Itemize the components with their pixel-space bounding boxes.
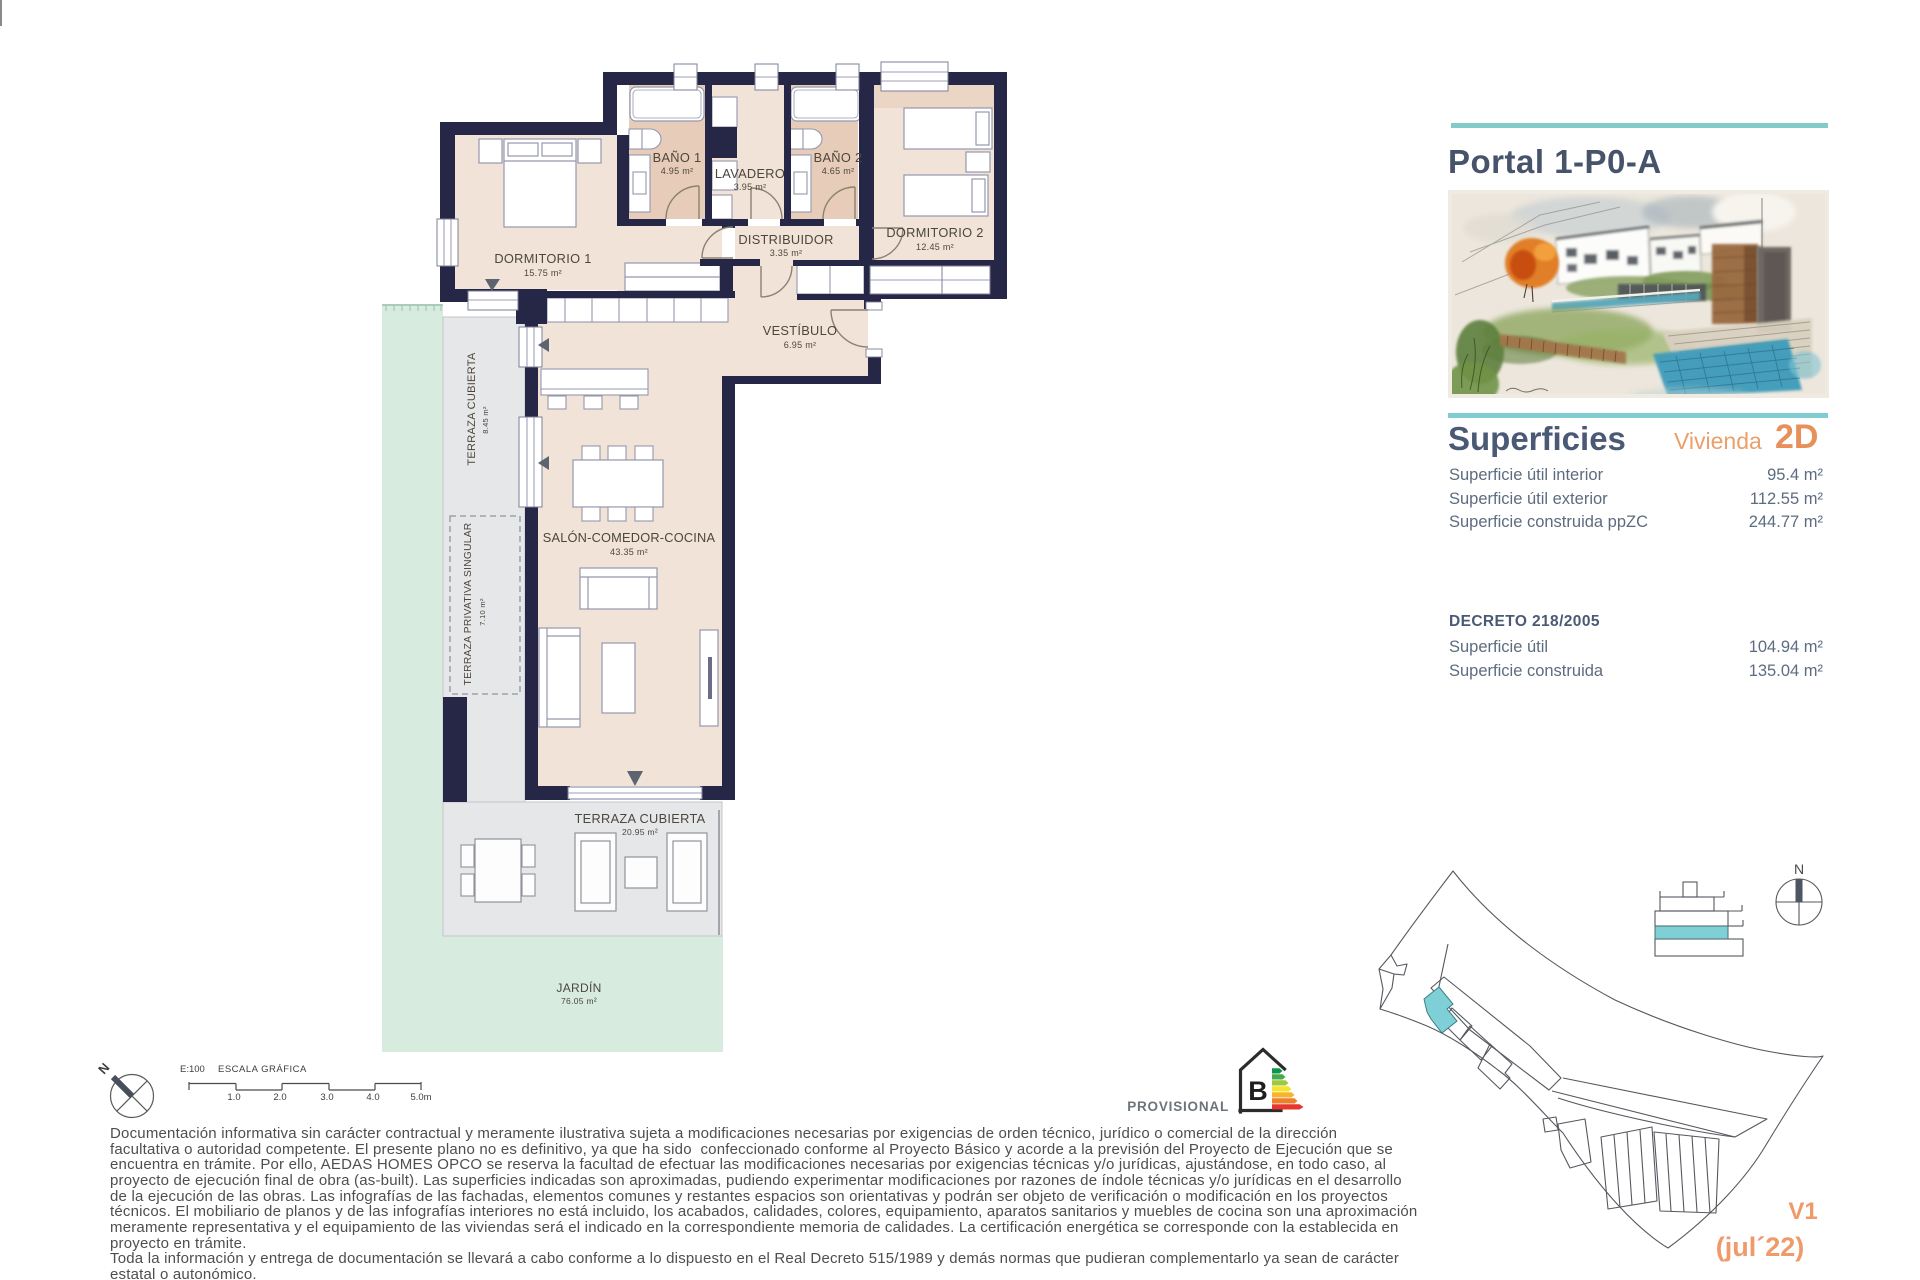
svg-text:SALÓN-COMEDOR-COCINA: SALÓN-COMEDOR-COCINA [543, 530, 716, 545]
svg-text:BAÑO 1: BAÑO 1 [653, 150, 702, 165]
svg-text:6.95 m²: 6.95 m² [784, 340, 817, 350]
svg-text:TERRAZA PRIVATIVA SINGULAR: TERRAZA PRIVATIVA SINGULAR [463, 523, 474, 686]
svg-text:1.0: 1.0 [227, 1092, 240, 1103]
svg-text:BAÑO 2: BAÑO 2 [814, 150, 863, 165]
svg-text:B: B [1248, 1076, 1268, 1106]
svg-text:76.05 m²: 76.05 m² [561, 996, 597, 1006]
svg-text:LAVADERO: LAVADERO [715, 166, 785, 181]
svg-text:3.35 m²: 3.35 m² [770, 248, 803, 258]
svg-text:43.35 m²: 43.35 m² [610, 547, 648, 557]
svg-text:3.0: 3.0 [320, 1092, 333, 1103]
svg-text:ESCALA GRÁFICA: ESCALA GRÁFICA [218, 1064, 307, 1075]
svg-text:DORMITORIO 1: DORMITORIO 1 [494, 251, 591, 266]
svg-text:TERRAZA CUBIERTA: TERRAZA CUBIERTA [575, 811, 706, 826]
svg-text:(jul´22): (jul´22) [1716, 1232, 1805, 1262]
svg-text:N: N [1794, 861, 1804, 877]
svg-text:PROVISIONAL: PROVISIONAL [1127, 1099, 1229, 1114]
svg-text:2.0: 2.0 [273, 1092, 286, 1103]
svg-text:20.95 m²: 20.95 m² [622, 827, 658, 837]
svg-text:TERRAZA CUBIERTA: TERRAZA CUBIERTA [466, 352, 478, 466]
svg-text:3.95 m²: 3.95 m² [734, 182, 767, 192]
svg-text:4.65 m²: 4.65 m² [822, 166, 855, 176]
svg-text:N: N [95, 1060, 112, 1077]
svg-text:4.95 m²: 4.95 m² [661, 166, 694, 176]
svg-text:E:100: E:100 [180, 1064, 205, 1075]
svg-text:4.0: 4.0 [366, 1092, 379, 1103]
svg-text:12.45 m²: 12.45 m² [916, 242, 954, 252]
svg-text:V1: V1 [1788, 1198, 1817, 1225]
svg-text:DISTRIBUIDOR: DISTRIBUIDOR [738, 232, 833, 247]
svg-text:8.45 m²: 8.45 m² [481, 406, 490, 434]
svg-text:DORMITORIO 2: DORMITORIO 2 [886, 225, 983, 240]
svg-text:5.0m: 5.0m [410, 1092, 431, 1103]
svg-text:VESTÍBULO: VESTÍBULO [763, 323, 838, 338]
svg-text:7.10 m²: 7.10 m² [478, 598, 487, 626]
svg-text:15.75 m²: 15.75 m² [524, 268, 562, 278]
svg-text:JARDÍN: JARDÍN [556, 980, 601, 995]
